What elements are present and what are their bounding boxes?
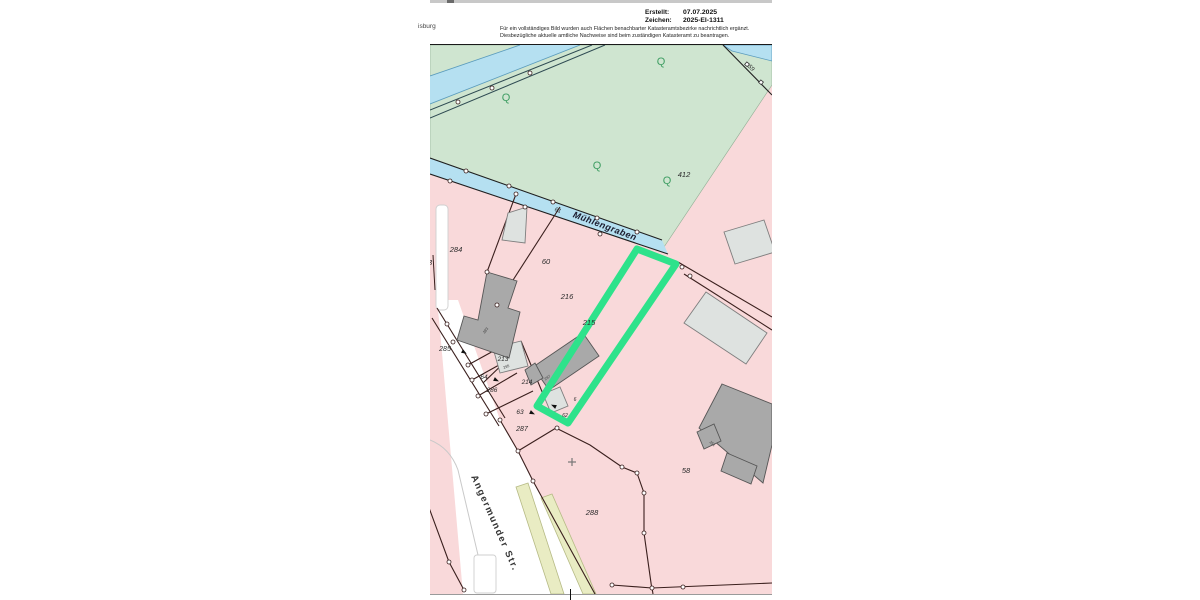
vegetation-q-icon: Q bbox=[657, 56, 666, 68]
created-label: Erstellt: bbox=[645, 9, 672, 17]
parcel-label-62: 62 bbox=[562, 413, 568, 419]
parcel-label-58: 58 bbox=[682, 466, 691, 475]
parcel-label-60: 60 bbox=[542, 257, 551, 266]
parcel-label-214: 214 bbox=[521, 379, 533, 386]
parcel-label-284: 284 bbox=[449, 245, 463, 254]
header-values: 07.07.2025 2025-EI-1311 bbox=[683, 9, 724, 25]
created-value: 07.07.2025 bbox=[683, 9, 724, 17]
parcel-label-412: 412 bbox=[678, 170, 691, 179]
parcel-label-213: 213 bbox=[497, 356, 509, 363]
reference-label: Zeichen: bbox=[645, 17, 672, 25]
cadastral-map: Q Q Q Q 284 33 60 216 215 213 214 285 64… bbox=[430, 45, 772, 594]
authority-text: isburg bbox=[418, 23, 436, 30]
vegetation-q-icon: Q bbox=[593, 160, 602, 172]
map-panel: Q Q Q Q 284 33 60 216 215 213 214 285 64… bbox=[430, 44, 772, 595]
header-labels: Erstellt: Zeichen: bbox=[645, 9, 672, 25]
disclaimer-text: Für ein vollständiges Bild wurden auch F… bbox=[500, 26, 772, 40]
parcel-label-6: 6 bbox=[574, 397, 577, 403]
parcel-label-216: 216 bbox=[560, 292, 574, 301]
parcel-label-215: 215 bbox=[582, 318, 596, 327]
parcel-label-285: 285 bbox=[438, 346, 451, 353]
driveway-strip bbox=[436, 205, 448, 310]
parcel-label-287: 287 bbox=[515, 426, 529, 433]
cadastral-map-page: isburg Erstellt: Zeichen: 07.07.2025 202… bbox=[0, 0, 1200, 600]
top-gray-bar bbox=[430, 0, 772, 3]
vegetation-q-icon: Q bbox=[502, 92, 511, 104]
fold-mark bbox=[570, 589, 571, 600]
parcel-label-288: 288 bbox=[585, 508, 599, 517]
vegetation-q-icon: Q bbox=[663, 175, 672, 187]
reference-value: 2025-EI-1311 bbox=[683, 17, 724, 25]
parcel-label-64: 64 bbox=[480, 374, 488, 381]
top-bar-mark bbox=[447, 0, 454, 3]
disclaimer-line-2: Diesbezügliche aktuelle amtliche Nachwei… bbox=[500, 33, 772, 40]
disclaimer-line-1: Für ein vollständiges Bild wurden auch F… bbox=[500, 26, 772, 33]
parcel-label-286: 286 bbox=[486, 387, 498, 394]
parking-bay bbox=[474, 555, 496, 593]
parcel-label-63: 63 bbox=[516, 409, 524, 416]
